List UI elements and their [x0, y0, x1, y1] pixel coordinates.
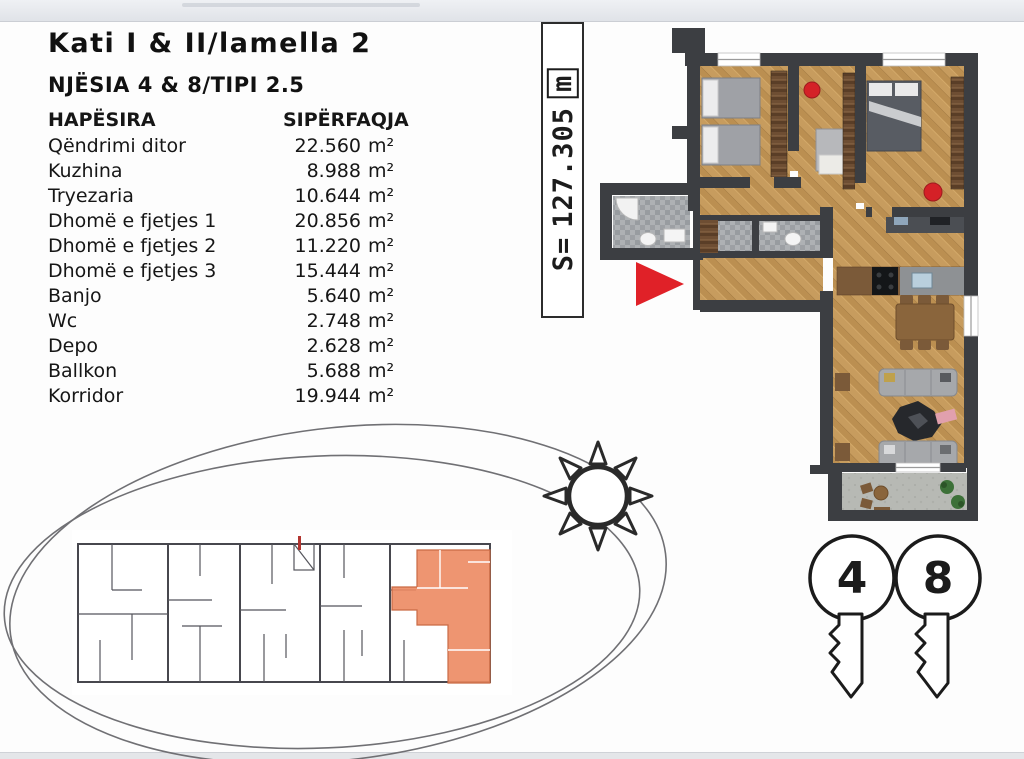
area-unit: m²	[368, 134, 394, 159]
armchair	[816, 129, 846, 174]
wall-right	[964, 53, 978, 468]
header-area: SIPËRFAQJA	[283, 109, 409, 131]
key-number: 4	[837, 553, 868, 604]
wall-top-stub	[672, 28, 705, 53]
wardrobe	[843, 73, 855, 189]
wall-left	[687, 53, 700, 181]
unit-subtitle: NJËSIA 4 & 8/TIPI 2.5	[48, 73, 468, 97]
kitchen-counter	[837, 267, 966, 295]
room-name: Wc	[48, 309, 283, 334]
room-area: 8.988	[283, 159, 361, 184]
table-row: Dhomë e fjetjes 2 11.220 m²	[48, 234, 468, 259]
total-value: 127.305	[547, 107, 578, 228]
side-table	[835, 443, 850, 461]
room-name: Qëndrimi ditor	[48, 134, 283, 159]
scan-top-edge	[0, 0, 1024, 22]
dining-table	[896, 304, 954, 340]
room-area: 22.560	[283, 134, 361, 159]
storage-shelf	[700, 220, 718, 253]
area-table: Qëndrimi ditor 22.560 m² Kuzhina 8.988 m…	[48, 134, 468, 409]
key-icon: 4	[810, 536, 894, 697]
room-area: 2.628	[283, 334, 361, 359]
area-unit: m²	[368, 284, 394, 309]
room-area: 10.644	[283, 184, 361, 209]
table-row: Tryezaria 10.644 m²	[48, 184, 468, 209]
wardrobe	[771, 71, 787, 177]
table-row: Depo 2.628 m²	[48, 334, 468, 359]
toilet	[785, 233, 801, 246]
room-name: Banjo	[48, 284, 283, 309]
toilet	[640, 233, 656, 246]
window	[718, 53, 760, 66]
entry-arrow-icon	[636, 262, 684, 306]
room-name: Kuzhina	[48, 159, 283, 184]
balcony-door	[896, 463, 940, 472]
table-row: Banjo 5.640 m²	[48, 284, 468, 309]
door-gap	[855, 183, 866, 203]
single-bed	[702, 125, 760, 165]
washbasin	[664, 229, 685, 242]
floor-plan	[600, 25, 992, 537]
area-unit: m²	[368, 259, 394, 284]
window	[883, 53, 945, 66]
info-panel: Kati I & II/lamella 2 NJËSIA 4 & 8/TIPI …	[48, 28, 468, 409]
door-gap	[750, 177, 774, 188]
washbasin	[763, 222, 777, 232]
red-pouf	[924, 183, 942, 201]
total-unit: m	[546, 69, 578, 98]
door-gap	[872, 207, 892, 217]
total-area-box: S= 127.305 m	[541, 22, 584, 318]
wall-left-stub	[672, 126, 700, 139]
room-area: 5.688	[283, 359, 361, 384]
room-name: Ballkon	[48, 359, 283, 384]
side-table	[835, 373, 850, 391]
window	[964, 296, 978, 336]
area-unit: m²	[368, 159, 394, 184]
total-area-text: S= 127.305 m	[546, 69, 578, 272]
building-site-plan	[72, 530, 512, 695]
room-area: 19.944	[283, 384, 361, 409]
area-unit: m²	[368, 184, 394, 209]
key-icon: 8	[896, 536, 980, 697]
sofa	[879, 369, 957, 396]
header-space: HAPËSIRA	[48, 109, 283, 131]
balcony-floor	[840, 473, 968, 515]
wardrobe	[951, 77, 964, 189]
table-row: Dhomë e fjetjes 1 20.856 m²	[48, 209, 468, 234]
table-row: Qëndrimi ditor 22.560 m²	[48, 134, 468, 159]
unit-keys: 4 8	[802, 528, 988, 713]
red-pouf	[804, 82, 820, 98]
dining-set	[896, 295, 954, 350]
table-header: HAPËSIRA SIPËRFAQJA	[48, 109, 468, 131]
area-unit: m²	[368, 384, 394, 409]
room-name: Dhomë e fjetjes 3	[48, 259, 283, 284]
room-name: Depo	[48, 334, 283, 359]
area-unit: m²	[368, 209, 394, 234]
total-label: S=	[547, 237, 578, 272]
area-unit: m²	[368, 234, 394, 259]
scan-smudge	[182, 3, 420, 7]
table-row: Kuzhina 8.988 m²	[48, 159, 468, 184]
area-unit: m²	[368, 334, 394, 359]
room-area: 5.640	[283, 284, 361, 309]
table-row: Wc 2.748 m²	[48, 309, 468, 334]
sink	[912, 273, 932, 288]
room-area: 11.220	[283, 234, 361, 259]
area-unit: m²	[368, 359, 394, 384]
single-bed	[702, 78, 760, 118]
room-name: Dhomë e fjetjes 2	[48, 234, 283, 259]
wall-balcony-bottom	[828, 510, 978, 521]
room-name: Tryezaria	[48, 184, 283, 209]
page-title: Kati I & II/lamella 2	[48, 28, 468, 59]
room-area: 15.444	[283, 259, 361, 284]
table-row: Dhomë e fjetjes 3 15.444 m²	[48, 259, 468, 284]
room-name: Korridor	[48, 384, 283, 409]
site-plan-marker	[298, 536, 301, 550]
area-unit: m²	[368, 309, 394, 334]
table-row: Korridor 19.944 m²	[48, 384, 468, 409]
room-area: 2.748	[283, 309, 361, 334]
door-gap	[788, 151, 799, 171]
room-area: 20.856	[283, 209, 361, 234]
double-bed	[867, 81, 921, 151]
key-number: 8	[923, 553, 954, 604]
stove	[872, 267, 898, 295]
room-name: Dhomë e fjetjes 1	[48, 209, 283, 234]
table-row: Ballkon 5.688 m²	[48, 359, 468, 384]
